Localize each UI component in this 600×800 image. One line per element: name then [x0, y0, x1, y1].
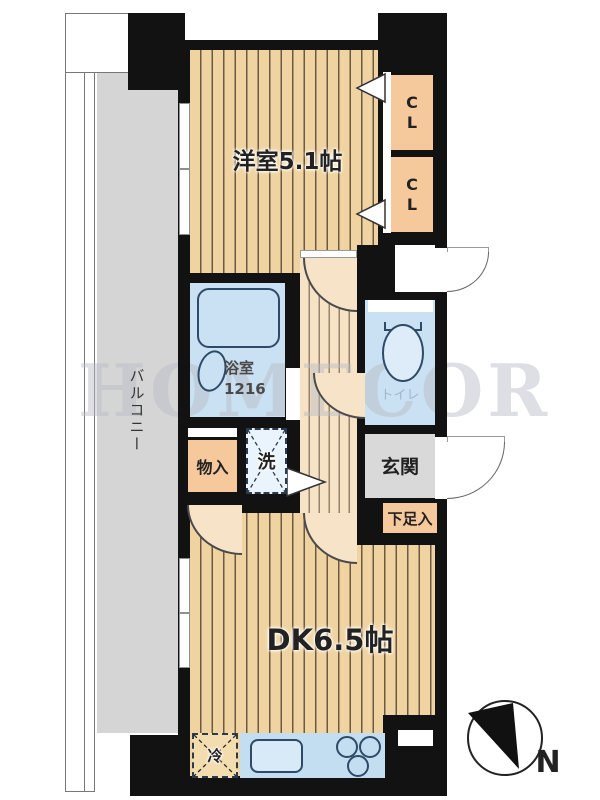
floorplan-canvas: HOMECOR: [0, 0, 600, 800]
toilet-bowl: [365, 300, 435, 425]
closet-upper-label: CL: [391, 80, 433, 145]
dk-room-label: DK6.5帖: [200, 620, 460, 656]
entrance-label: 玄関: [365, 452, 435, 478]
stove-burners: [330, 735, 385, 778]
closet-fold-marks: [0, 0, 600, 800]
bathtub: [197, 288, 280, 348]
western-room-label: 洋室5.1帖: [195, 142, 380, 176]
compass-north-label: N: [528, 742, 568, 782]
washer-label: 洗: [246, 428, 287, 494]
bath-label: 浴室 1216: [224, 358, 286, 406]
shoe-cabinet-label: 下足入: [383, 503, 437, 533]
kitchen-sink: [250, 739, 303, 773]
closet-lower-label: CL: [391, 162, 433, 227]
balcony-label: バルコニー: [120, 330, 154, 490]
toilet-label: トイレ: [370, 384, 430, 402]
storage-label: 物入: [188, 440, 237, 492]
refrigerator-label: 冷: [192, 733, 238, 778]
